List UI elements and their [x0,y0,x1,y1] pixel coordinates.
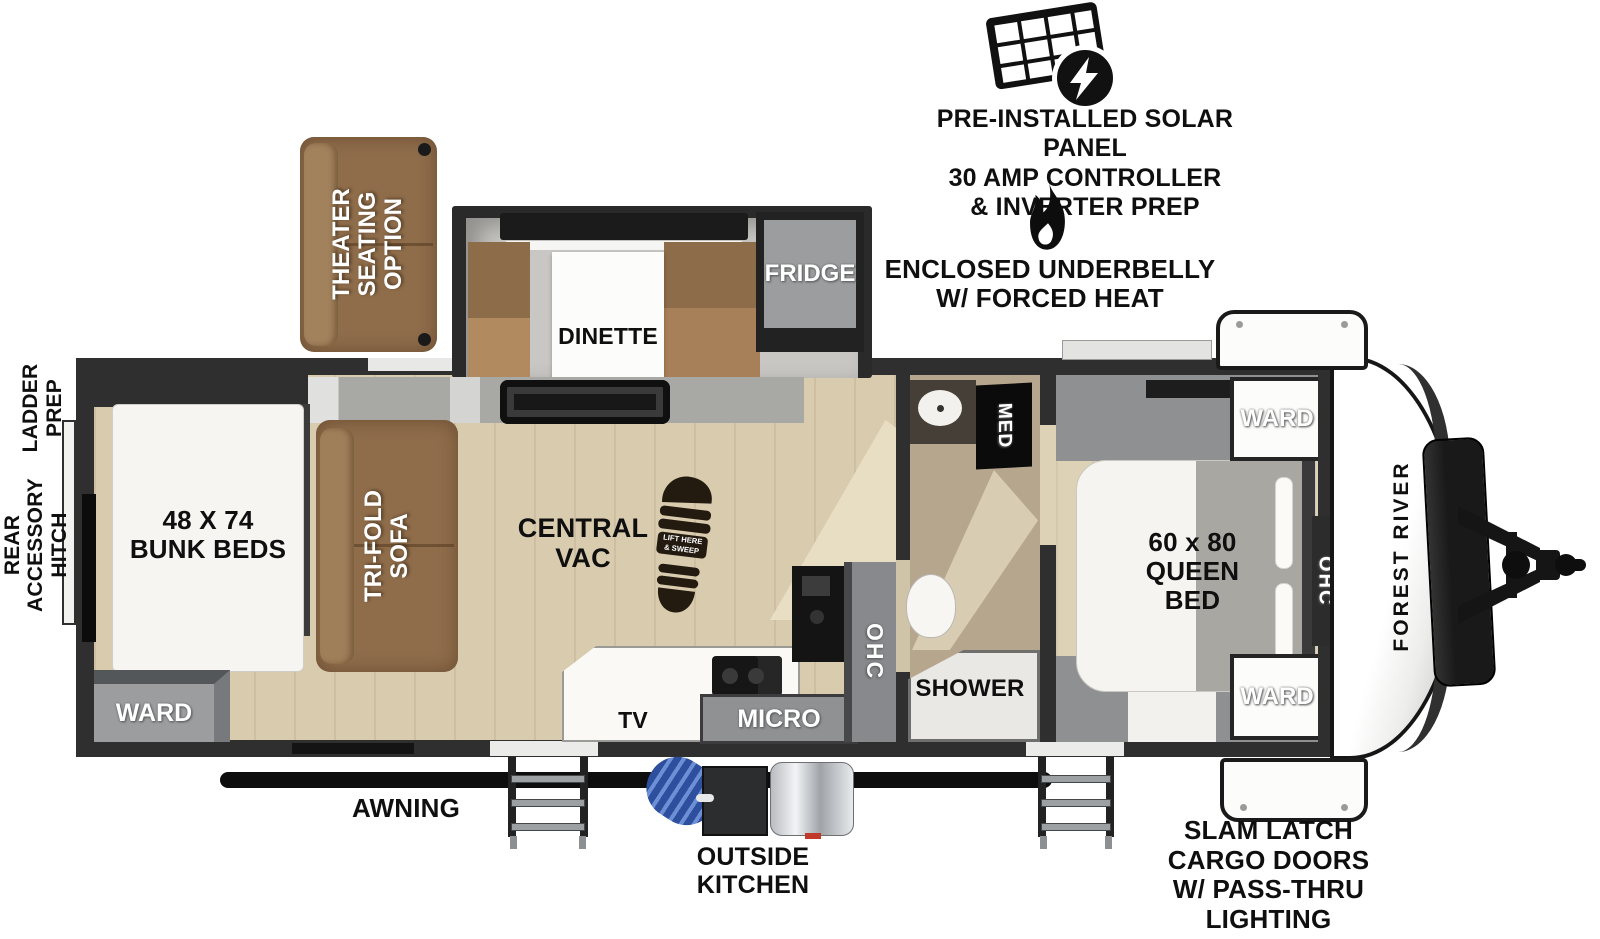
cargo-label-line3: W/ PASS-THRU [1146,875,1391,905]
rear-hitch-line2: ACCESSORY [24,478,48,612]
rear-hitch-line3: HITCH [48,478,72,612]
central-vac-label: CENTRAL VAC [498,513,668,573]
brand-label: FOREST RIVER [1389,421,1415,691]
wardrobe-rear: WARD [94,670,230,742]
microwave-label: MICRO [737,706,820,732]
appliance-knob [810,610,824,624]
bunk-label-line2: BUNK BEDS [112,535,304,564]
bunk-header-wall [94,375,308,407]
outside-kitchen-label: OUTSIDE KITCHEN [686,843,820,899]
cargo-door-screw [1341,321,1348,328]
cooktop-burner [722,668,738,684]
flame-icon [1021,181,1075,255]
theater-seating-label: THEATER SEATING OPTION [326,164,410,324]
trifold-label: TRI-FOLD SOFA [358,461,416,631]
dinette-table [552,252,664,378]
central-vac-line2: VAC [498,543,668,573]
wardrobe-front-bottom: WARD [1230,654,1324,740]
queen-bed-label: 60 x 80 QUEEN BED [1100,528,1285,615]
trifold-label-line1: TRI-FOLD [361,490,387,602]
cargo-label-line2: CARGO DOORS [1146,846,1391,876]
tv-label: TV [600,708,666,734]
theater-label-line2: SEATING [355,188,381,300]
outside-kitchen-box [702,766,768,836]
fridge: FRIDGE [764,220,856,328]
cargo-door-top [1216,310,1368,370]
roof-vent [500,380,670,424]
dinette-slideout: FRIDGE [452,206,872,378]
appliance-panel [802,576,830,596]
outside-griddle-icon [770,762,854,836]
medicine-cabinet: MED [976,383,1032,470]
hitch-icon [1458,498,1590,632]
brand-text: FOREST RIVER [1390,460,1414,651]
underbelly-callout: ENCLOSED UNDERBELLY W/ FORCED HEAT [876,255,1224,313]
cargo-door-bottom [1220,758,1368,822]
wardrobe-front-bottom-label: WARD [1240,684,1313,709]
solar-callout: PRE-INSTALLED SOLAR PANEL 30 AMP CONTROL… [925,105,1245,222]
theater-sofa-foot [418,333,431,346]
underbelly-callout-line1: ENCLOSED UNDERBELLY [876,255,1224,284]
bedroom-window-top [1146,380,1230,398]
underbelly-callout-line2: W/ FORCED HEAT [876,284,1224,313]
trifold-backrest [320,428,354,664]
cargo-doors-label: SLAM LATCH CARGO DOORS W/ PASS-THRU LIGH… [1146,816,1391,935]
solar-panel-icon [982,0,1132,112]
fridge-label: FRIDGE [765,261,856,286]
wardrobe-front-top-label: WARD [1240,406,1313,431]
solar-callout-line1: PRE-INSTALLED SOLAR PANEL [925,105,1245,164]
rear-accessory-hitch-label: REAR ACCESSORY HITCH [0,455,75,635]
dinette-bench-right [664,242,760,378]
cargo-label-line1: SLAM LATCH [1146,816,1391,846]
overhead-cabinet-kitchen: OHC [844,562,898,742]
outside-kitchen-line2: KITCHEN [686,871,820,899]
ladder-prep-line1: LADDER [19,364,43,453]
griddle-valve [805,833,821,839]
toilet [906,574,956,638]
theater-label-line3: OPTION [381,188,407,300]
awning-bar [220,772,1052,788]
med-cabinet-label: MED [994,403,1014,449]
entry-steps-bedroom [1034,757,1118,849]
outside-faucet [696,794,714,802]
awning-label: AWNING [336,794,476,823]
cargo-door-screw [1240,804,1247,811]
trifold-label-line2: SOFA [387,490,413,602]
entry-door-gap-bedroom [1026,741,1124,756]
solar-callout-line2: 30 AMP CONTROLLER [925,164,1245,193]
kitchen-ohc-label: OHC [863,623,887,680]
floorplan-canvas: PRE-INSTALLED SOLAR PANEL 30 AMP CONTROL… [0,0,1600,939]
bunk-beds-label: 48 X 74 BUNK BEDS [112,506,304,564]
bunk-label-line1: 48 X 74 [112,506,304,535]
cooktop-burner [748,668,764,684]
ladder-prep-line2: PREP [43,364,67,453]
cargo-door-screw [1341,804,1348,811]
queen-label-line3: BED [1100,586,1285,615]
outside-kitchen-line1: OUTSIDE [686,843,820,871]
queen-label-line1: 60 x 80 [1100,528,1285,557]
microwave: MICRO [700,694,858,744]
entry-door-gap-main [490,741,598,756]
central-vac-line1: CENTRAL [498,513,668,543]
dinette-label: DINETTE [552,324,664,350]
ladder-bracket [82,494,96,642]
kitchen-appliance [792,566,844,662]
cargo-door-screw [1236,321,1243,328]
rear-hitch-line1: REAR [1,478,25,612]
exterior-ledge [1062,340,1212,360]
theater-label-line1: THEATER [329,188,355,300]
window-bottom [292,743,414,754]
entry-steps-main [504,757,592,849]
shower-label: SHOWER [908,676,1032,703]
bathroom-door-right [1040,425,1056,545]
wardrobe-front-top: WARD [1230,377,1324,461]
window-top-left [368,358,452,371]
bedroom-entry-door [1128,688,1216,742]
wardrobe-rear-label: WARD [116,700,192,726]
theater-sofa-foot [418,143,431,156]
bath-sink-drain [937,405,944,412]
cargo-label-line4: LIGHTING [1146,905,1391,935]
queen-label-line2: QUEEN [1100,557,1285,586]
dinette-bench-left [468,242,530,378]
solar-callout-line3: & INVERTER PREP [925,193,1245,222]
dinette-window [500,213,748,240]
